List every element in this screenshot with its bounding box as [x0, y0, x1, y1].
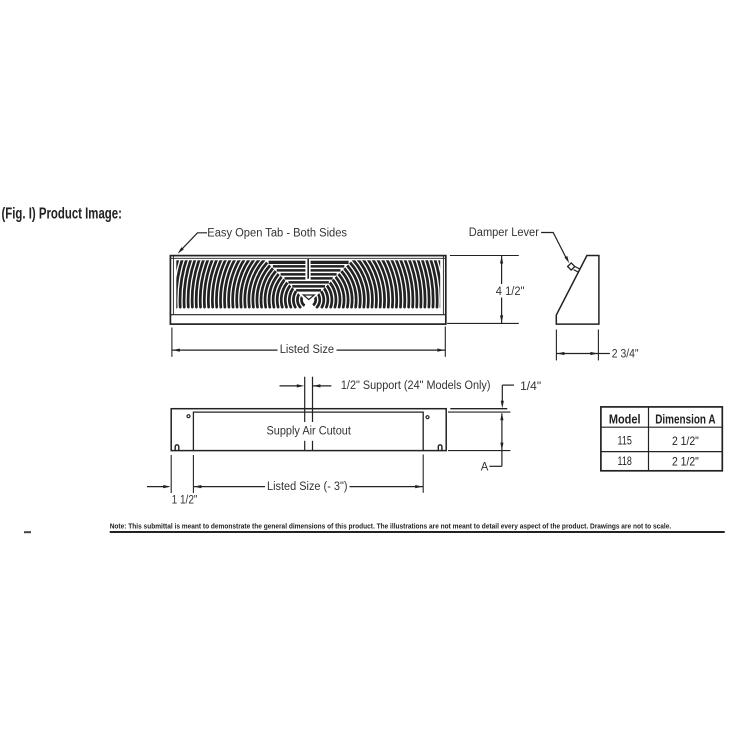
- svg-text:1 1/2": 1 1/2": [172, 494, 198, 506]
- svg-text:Note: This submittal is meant: Note: This submittal is meant to demonst…: [110, 523, 672, 530]
- svg-text:2 1/2": 2 1/2": [672, 454, 699, 468]
- svg-text:4 1/2": 4 1/2": [496, 286, 525, 298]
- svg-text:118: 118: [618, 454, 633, 468]
- svg-text:Supply Air Cutout: Supply Air Cutout: [267, 426, 352, 438]
- svg-text:Listed Size (- 3"): Listed Size (- 3"): [267, 481, 348, 493]
- svg-text:Easy Open Tab - Both Sides: Easy Open Tab - Both Sides: [207, 227, 347, 239]
- svg-text:Damper Lever: Damper Lever: [469, 227, 539, 239]
- svg-text:1/4": 1/4": [520, 381, 541, 393]
- svg-text:Model: Model: [609, 412, 641, 427]
- svg-text:A: A: [481, 462, 489, 474]
- svg-text:115: 115: [618, 434, 633, 448]
- svg-text:1/2" Support (24" Models Only): 1/2" Support (24" Models Only): [341, 380, 491, 392]
- svg-text:Dimension A: Dimension A: [655, 412, 716, 427]
- svg-text:(Fig. I) Product Image:: (Fig. I) Product Image:: [2, 206, 122, 223]
- svg-text:2 3/4": 2 3/4": [612, 348, 639, 360]
- svg-text:Listed Size: Listed Size: [280, 344, 334, 356]
- svg-text:2 1/2": 2 1/2": [672, 434, 699, 448]
